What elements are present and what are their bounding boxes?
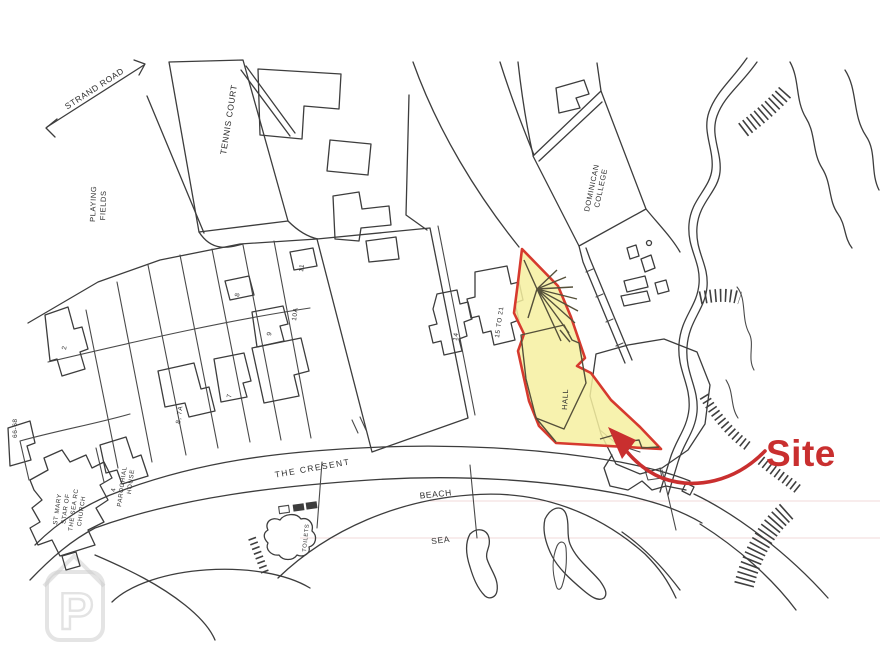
scan-artifacts — [300, 501, 880, 538]
double-wall-line — [241, 66, 295, 136]
dominican-college-label: DOMINICAN COLLEGE — [582, 161, 610, 215]
plot-10a-label: 10A — [291, 307, 300, 321]
plot-14-label: 14 — [452, 332, 460, 341]
hall-label: HALL — [560, 388, 570, 410]
parochial-house-label: 4 PAROCHIAL HOUSE — [108, 463, 137, 509]
site-location-map: P — [0, 0, 880, 645]
plot-11-label: 11 — [298, 263, 306, 272]
cliff-lines — [726, 287, 754, 418]
shoreline — [700, 524, 796, 610]
plot-dividers — [86, 241, 311, 468]
map-linework — [8, 58, 879, 640]
sea-label: SEA — [431, 534, 451, 547]
embankment-hatch — [744, 511, 787, 585]
shelter-outline — [279, 505, 290, 513]
sea-wall — [95, 555, 215, 640]
plot-2-label: 2 — [61, 345, 69, 350]
shelter-block — [306, 501, 318, 509]
site-arrow-curve — [621, 444, 765, 483]
shoreline — [694, 494, 828, 598]
boundary-line — [518, 62, 533, 155]
footpath-ticks — [586, 269, 623, 346]
site-highlight — [514, 249, 661, 449]
road-edge — [500, 62, 534, 155]
house-outline-10a — [252, 338, 309, 403]
beach-label: BEACH — [419, 487, 452, 500]
rock-outlines — [621, 245, 669, 306]
road-edge — [413, 62, 519, 247]
slipway-hatch — [252, 538, 266, 575]
watermark-logo: P — [44, 556, 104, 641]
sea-wall-arc — [112, 569, 310, 602]
watermark-letter: P — [59, 583, 94, 641]
site-label: Site — [766, 433, 836, 474]
building-outline — [258, 69, 341, 139]
building-outline-14 — [429, 290, 472, 355]
beach-dividers — [317, 462, 676, 538]
playing-fields-label: PLAYING FIELDS — [88, 183, 108, 222]
rock-outline — [553, 542, 566, 589]
plot-8-7a-label: 8, 7A — [175, 405, 184, 424]
coast-path-outer — [668, 62, 757, 495]
steps-hatch — [704, 396, 749, 447]
rock-outline — [544, 508, 606, 599]
boundary-line — [646, 209, 680, 252]
map-canvas: P — [0, 0, 880, 645]
shoreline — [790, 62, 852, 248]
rock-outline — [647, 241, 652, 246]
house-outline-2 — [45, 307, 88, 376]
strand-road-arrow — [47, 65, 144, 127]
embankment-hatch — [700, 295, 740, 298]
building-outline — [333, 192, 391, 241]
sea-edge — [278, 494, 676, 598]
band-upper-boundary — [28, 239, 317, 323]
church-label: ST MARY STAR OF THE SEA RC CHURCH — [51, 484, 88, 533]
boundary-line — [406, 95, 427, 230]
fence-line — [147, 96, 204, 233]
building-outline — [366, 237, 399, 262]
road-upper-edge — [35, 446, 690, 545]
tennis-court-label: TENNIS COURT — [218, 84, 239, 155]
the-cresent-label: THE CRESENT — [274, 456, 351, 479]
strand-road-label: STRAND ROAD — [63, 66, 126, 112]
boundary-line — [288, 221, 318, 239]
rock-outline — [467, 530, 498, 598]
shelter-block — [293, 503, 305, 511]
embankment-hatch — [743, 90, 787, 130]
plot-15-21-label: 15 TO 21 — [494, 306, 505, 338]
plot-8-label: 8 — [234, 292, 242, 297]
boundary-line — [597, 63, 601, 91]
shoreline — [845, 70, 879, 190]
plot-9-label: 9 — [266, 331, 274, 336]
plot-7-label: 7 — [226, 393, 234, 398]
building-outline — [327, 140, 371, 175]
plot-66-68-label: 66-68 — [12, 418, 19, 438]
